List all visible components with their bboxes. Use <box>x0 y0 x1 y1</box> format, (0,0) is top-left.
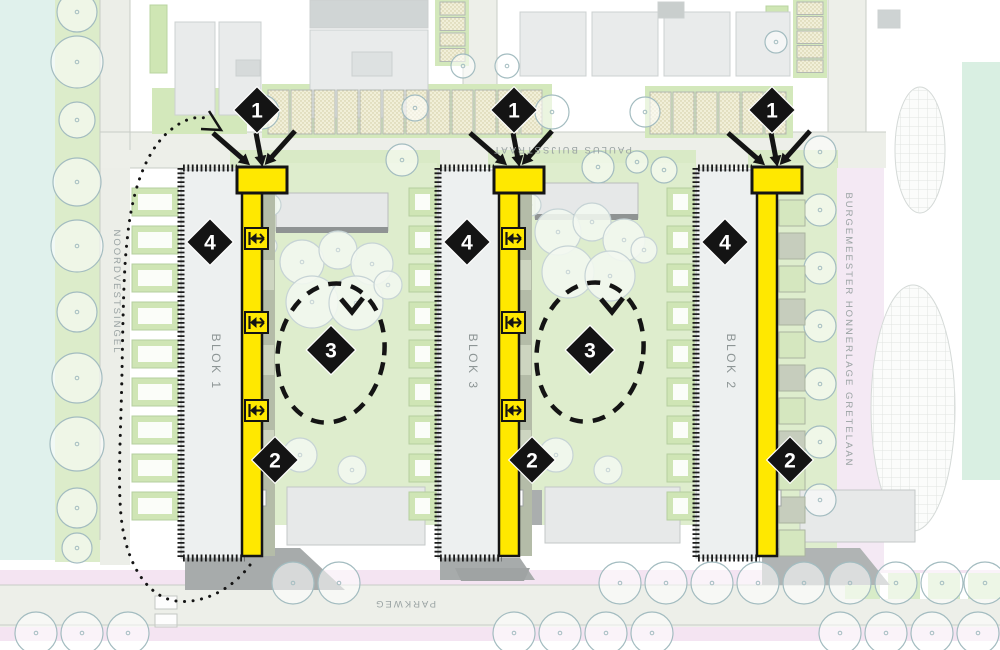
marker-1-badge-number: 1 <box>251 100 263 123</box>
tree-icon <box>318 562 360 604</box>
parking-stall <box>696 92 717 134</box>
tree-icon <box>338 456 366 484</box>
tree-icon <box>594 456 622 484</box>
terrace-unit <box>779 332 805 358</box>
parking-stall <box>797 46 823 59</box>
terrace-unit <box>779 365 805 391</box>
tree-icon <box>737 562 779 604</box>
garden-plot-inner <box>673 498 688 514</box>
parking-stall <box>440 2 465 15</box>
marker-1-badge-number: 1 <box>766 100 778 123</box>
tree-icon <box>804 310 836 342</box>
tree-icon <box>631 237 657 263</box>
garden-plot-inner <box>415 498 430 514</box>
tree-icon <box>804 368 836 400</box>
label-street-south: PARKWEG <box>374 598 436 609</box>
garden-plot-inner <box>415 384 430 400</box>
tree-icon <box>374 271 402 299</box>
garden-plot-inner <box>415 308 430 324</box>
tree-icon <box>53 158 101 206</box>
terrace-unit <box>779 497 805 523</box>
label-street-east: BURGEMEESTER HONNERLAGE GRETELAAN <box>843 192 854 467</box>
parking-stall <box>383 90 404 134</box>
garden-plot-inner <box>415 270 430 286</box>
terrace-unit <box>779 530 805 556</box>
tree-icon <box>804 136 836 168</box>
parking-stall <box>673 92 694 134</box>
parking-stall <box>314 90 335 134</box>
garden-plot-inner <box>138 308 172 324</box>
marker-4-badge-number: 4 <box>461 232 473 255</box>
parking-stall <box>452 90 473 134</box>
parking-stall <box>337 90 358 134</box>
garden-plot-inner <box>415 422 430 438</box>
marker-4-badge-number: 4 <box>719 232 731 255</box>
tree-icon <box>585 251 635 301</box>
tree-icon <box>599 562 641 604</box>
garden-plot-inner <box>673 308 688 324</box>
tree-icon <box>964 562 1000 604</box>
tree-icon <box>804 194 836 226</box>
blok-1-label: BLOK 1 <box>209 333 223 390</box>
terrace-unit <box>779 299 805 325</box>
parking-stall <box>797 2 823 15</box>
garden-plot-inner <box>138 270 172 286</box>
garden-plot-inner <box>138 232 172 248</box>
marker-3-badge-number: 3 <box>584 340 596 363</box>
site-plan-drawing: BLOK 1142BLOK 3142BLOK 2142 33 PAULUS BU… <box>0 0 1000 650</box>
parking-stall <box>360 90 381 134</box>
garden-plot-inner <box>673 346 688 362</box>
tree-icon <box>51 220 103 272</box>
garden-plot-inner <box>673 460 688 476</box>
garden-plot-inner <box>415 194 430 210</box>
terrace-unit <box>779 233 805 259</box>
terrace-unit <box>779 266 805 292</box>
garden-plot-inner <box>673 194 688 210</box>
gallery-deck-light <box>263 345 274 375</box>
parking-stall <box>797 31 823 44</box>
tree-icon <box>272 562 314 604</box>
parking-stall <box>429 90 450 134</box>
marker-2-badge-number: 2 <box>526 450 538 473</box>
garden-plot-inner <box>138 422 172 438</box>
garden-plot-inner <box>138 498 172 514</box>
marker-3-badge-number: 3 <box>325 340 337 363</box>
tree-icon <box>691 562 733 604</box>
tree-icon <box>651 157 677 183</box>
garden-plot-inner <box>415 460 430 476</box>
garden-plot-inner <box>415 346 430 362</box>
tree-icon <box>535 95 569 129</box>
water-canal <box>0 0 55 560</box>
label-street-north: PAULUS BUIJSSTRAAT <box>492 144 632 155</box>
garden-plot-inner <box>138 346 172 362</box>
tree-icon <box>50 417 104 471</box>
tree-icon <box>783 562 825 604</box>
gallery-deck-light <box>520 260 531 290</box>
crossing-island <box>155 596 177 609</box>
tree-icon <box>804 484 836 516</box>
tree-icon <box>386 144 418 176</box>
marker-4-badge-number: 4 <box>204 232 216 255</box>
garden-plot-inner <box>138 194 172 210</box>
terrace-unit <box>779 200 805 226</box>
entrance-bar <box>494 167 544 193</box>
terrace-unit <box>779 398 805 424</box>
entrance-bar <box>237 167 287 193</box>
garden-plot-inner <box>673 422 688 438</box>
parking-stall <box>797 60 823 73</box>
gallery-strip <box>757 170 777 556</box>
tree-icon <box>59 102 95 138</box>
tree-icon <box>765 31 787 53</box>
tree-icon <box>451 54 475 78</box>
blok-2-label: BLOK 2 <box>724 333 738 390</box>
parking-stall <box>797 17 823 30</box>
tree-icon <box>804 426 836 458</box>
tree-icon <box>402 95 428 121</box>
parking-stall <box>440 18 465 31</box>
parking-stall <box>719 92 740 134</box>
parking-stall <box>440 33 465 46</box>
tree-icon <box>875 562 917 604</box>
tree-icon <box>62 533 92 563</box>
gallery-deck-light <box>520 345 531 375</box>
garden-plot-inner <box>415 232 430 248</box>
garden-plot-inner <box>673 270 688 286</box>
tree-icon <box>829 562 871 604</box>
tree-icon <box>804 252 836 284</box>
tree-icon <box>921 562 963 604</box>
tree-icon <box>51 36 103 88</box>
gallery-deck-light <box>263 260 274 290</box>
garden-plot-inner <box>138 384 172 400</box>
marker-1-badge-number: 1 <box>508 100 520 123</box>
garden-plot-inner <box>673 384 688 400</box>
tree-icon <box>57 488 97 528</box>
tree-icon <box>645 562 687 604</box>
label-street-west: NOORDVESTSINGEL <box>111 229 122 354</box>
entrance-bar <box>752 167 802 193</box>
blok-3-label: BLOK 3 <box>466 333 480 390</box>
marker-2-badge-number: 2 <box>269 450 281 473</box>
tree-icon <box>57 292 97 332</box>
tree-icon <box>495 54 519 78</box>
east-mint-field <box>962 62 1000 480</box>
tree-icon <box>630 97 660 127</box>
garden-plot-inner <box>673 232 688 248</box>
marker-2-badge-number: 2 <box>784 450 796 473</box>
site-plan: BLOK 1142BLOK 3142BLOK 2142 33 PAULUS BU… <box>0 0 1000 650</box>
tree-icon <box>52 353 102 403</box>
parking-stall <box>291 90 312 134</box>
garden-plot-inner <box>138 460 172 476</box>
